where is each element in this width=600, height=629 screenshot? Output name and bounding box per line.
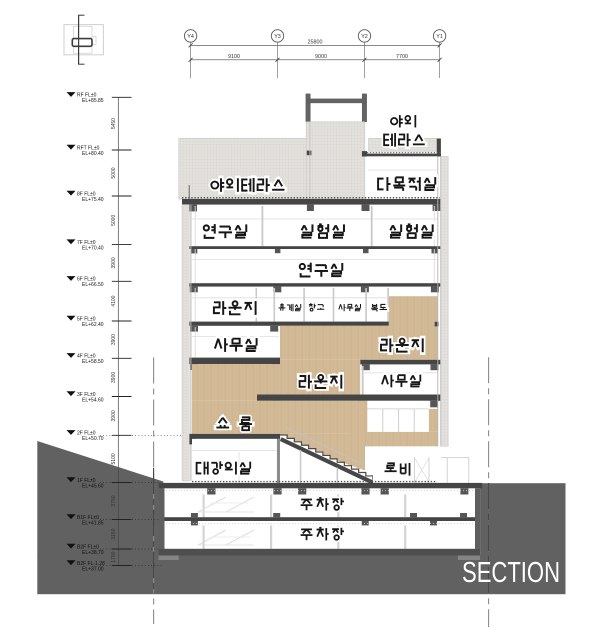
svg-text:EL+85.85: EL+85.85 <box>82 98 104 104</box>
svg-text:1700: 1700 <box>111 551 117 562</box>
svg-text:EL+80.40: EL+80.40 <box>82 151 104 157</box>
svg-text:3900: 3900 <box>111 257 117 268</box>
svg-text:5100: 5100 <box>111 453 117 464</box>
svg-text:9100: 9100 <box>228 54 240 60</box>
svg-text:7700: 7700 <box>396 54 408 60</box>
svg-text:EL+50.70: EL+50.70 <box>82 436 104 442</box>
svg-text:SECTION: SECTION <box>462 557 560 589</box>
svg-text:EL+45.60: EL+45.60 <box>82 483 104 489</box>
svg-text:3150: 3150 <box>111 528 117 539</box>
svg-text:EL+70.40: EL+70.40 <box>82 245 104 251</box>
svg-text:3900: 3900 <box>111 372 117 383</box>
svg-text:Y3: Y3 <box>274 34 281 40</box>
svg-text:25800: 25800 <box>308 40 323 46</box>
svg-text:EL+75.40: EL+75.40 <box>82 197 104 203</box>
svg-text:Y1: Y1 <box>436 34 443 40</box>
svg-text:9000: 9000 <box>315 54 327 60</box>
svg-text:EL+54.60: EL+54.60 <box>82 397 104 403</box>
svg-text:3900: 3900 <box>111 334 117 345</box>
svg-text:3900: 3900 <box>111 410 117 421</box>
svg-text:5000: 5000 <box>111 215 117 226</box>
svg-text:4100: 4100 <box>111 295 117 306</box>
svg-text:EL+37.00: EL+37.00 <box>82 566 104 572</box>
svg-text:EL+62.40: EL+62.40 <box>82 322 104 328</box>
svg-text:3750: 3750 <box>111 495 117 506</box>
svg-text:EL+58.50: EL+58.50 <box>82 359 104 365</box>
svg-text:EL+41.85: EL+41.85 <box>82 520 104 526</box>
svg-text:5450: 5450 <box>111 118 117 129</box>
svg-text:5000: 5000 <box>111 167 117 178</box>
svg-text:EL+66.50: EL+66.50 <box>82 282 104 288</box>
svg-text:Y4: Y4 <box>187 34 194 40</box>
svg-text:Y2: Y2 <box>361 34 368 40</box>
svg-text:EL+38.70: EL+38.70 <box>82 550 104 556</box>
